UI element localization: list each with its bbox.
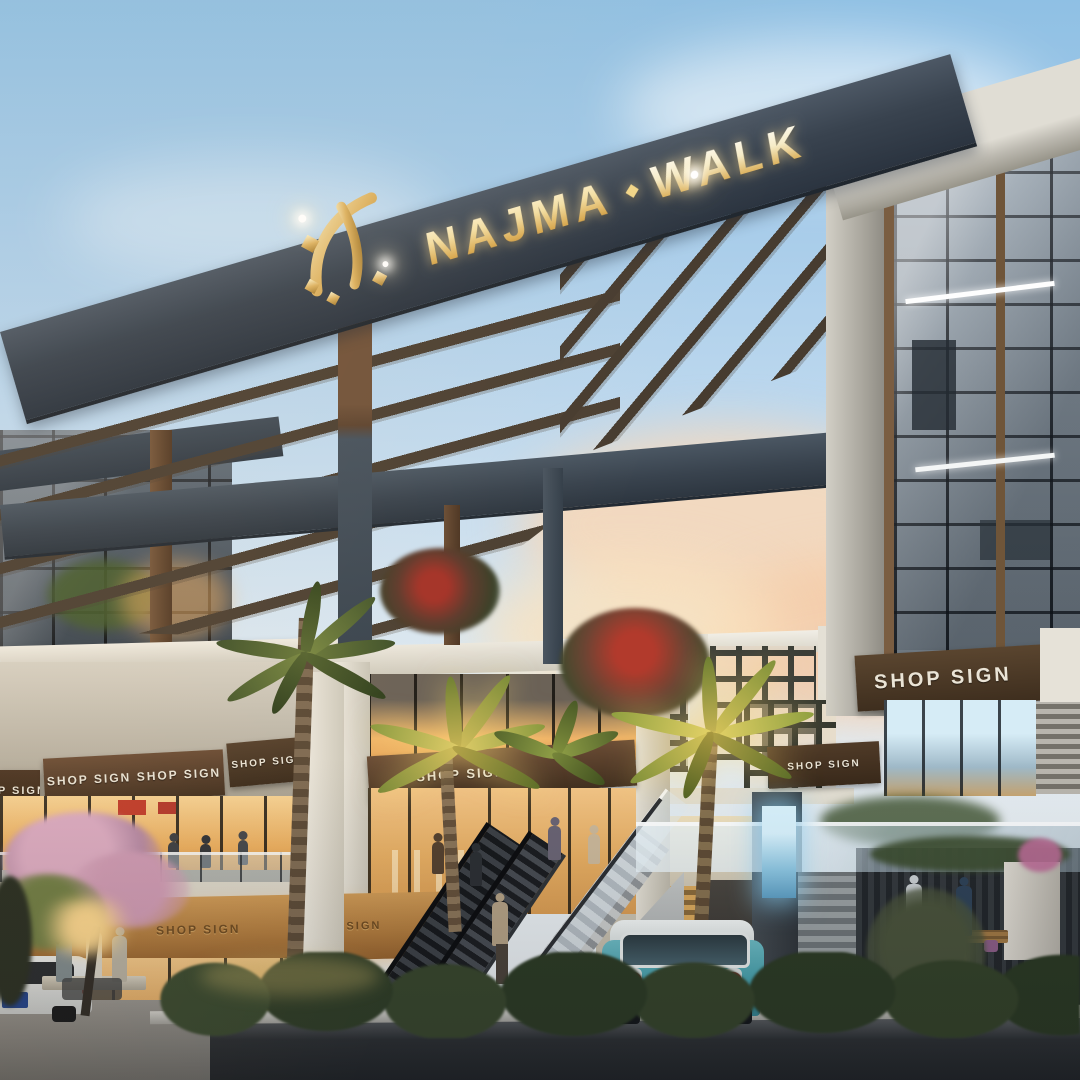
red-lamp bbox=[118, 800, 146, 815]
red-flower-tree bbox=[560, 608, 710, 718]
shop-sign-label: SHOP SIGN bbox=[136, 765, 221, 783]
najma-walk-render: SHOP SIGN SHOP SIGN SHOP SIGN SHOP SIGN … bbox=[0, 0, 1080, 1080]
interior-furniture bbox=[912, 340, 956, 430]
red-flower-tree bbox=[380, 548, 500, 634]
person bbox=[548, 826, 561, 860]
shop-sign-label: SHOP SIGN bbox=[47, 770, 132, 788]
gate-column bbox=[338, 300, 372, 648]
person bbox=[588, 834, 600, 864]
shop-sign-label: SHOP SIGN bbox=[787, 758, 861, 773]
info-screen bbox=[762, 806, 796, 898]
person bbox=[432, 842, 444, 874]
red-lamp bbox=[158, 802, 176, 814]
person bbox=[470, 852, 482, 886]
right-pier bbox=[826, 150, 884, 716]
hedge-highlight bbox=[200, 956, 380, 996]
shop-sign-band: SHOP SIGN bbox=[767, 741, 881, 789]
white-planter bbox=[1004, 862, 1060, 960]
handbag bbox=[984, 940, 998, 952]
person-walking bbox=[492, 902, 508, 946]
white-car-wheel bbox=[52, 1006, 76, 1022]
interior-furniture bbox=[980, 520, 1050, 560]
brand-separator-diamond: ◆ bbox=[623, 178, 640, 203]
pink-flowers bbox=[1018, 838, 1062, 872]
right-wood-mullion bbox=[996, 140, 1005, 655]
right-storefront bbox=[884, 700, 1036, 796]
louver-shutter bbox=[1036, 702, 1080, 794]
gate-column bbox=[543, 468, 563, 664]
shop-sign-label: SHOP SIGN bbox=[873, 663, 1012, 694]
shop-sign-label: SHOP SIGN bbox=[156, 922, 241, 938]
tree-uplight-glow bbox=[34, 898, 138, 956]
